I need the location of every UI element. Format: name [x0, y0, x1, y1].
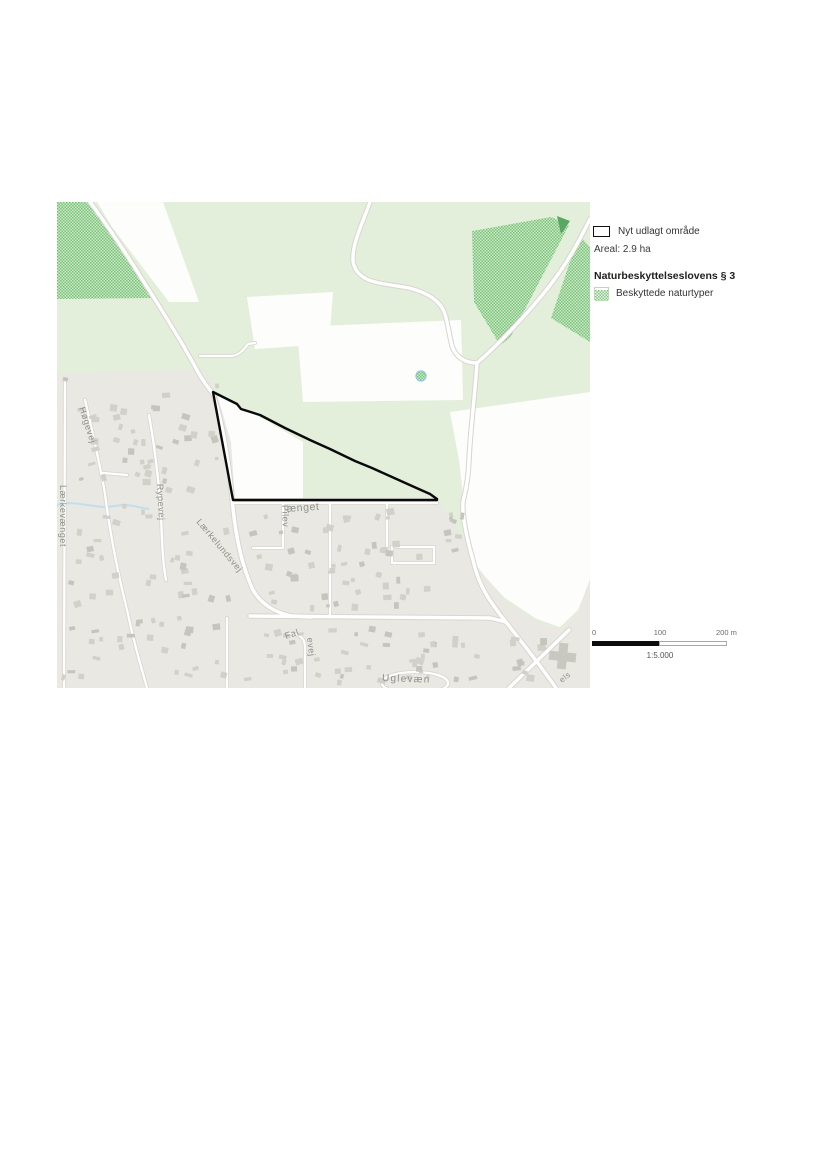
new-area-label: Nyt udlagt område [618, 226, 700, 237]
scale-tick-200: 200 m [716, 628, 737, 637]
area-value: Areal: 2.9 ha [594, 244, 821, 255]
street-label-rypevej: Rypevej [155, 484, 167, 521]
scale-bar-graphic [592, 641, 726, 646]
street-label-pilevaenget-horizontal: ænget [286, 501, 320, 515]
scale-tick-100: 100 [649, 628, 671, 637]
new-area-swatch [593, 226, 610, 237]
scale-bar-white-half [659, 641, 727, 646]
scale-tick-0: 0 [592, 628, 596, 637]
document-page: { "page": { "type": "plan-document-map-f… [0, 0, 827, 1169]
map-legend: Nyt udlagt område Areal: 2.9 ha Naturbes… [593, 226, 821, 300]
scale-bar-black-half [592, 641, 659, 646]
protected-nature-label: Beskyttede naturtyper [616, 288, 713, 299]
protected-nature-swatch [594, 287, 609, 300]
pond [416, 371, 426, 381]
legend-protected-row: Beskyttede naturtyper [594, 287, 821, 300]
scale-ticks: 0 100 200 m [592, 628, 752, 638]
scale-ratio: 1:5.000 [634, 651, 686, 660]
map-figure: Høgevej Rypevej Lærkelundsvej Lærkevænge… [57, 202, 590, 688]
legend-new-area-row: Nyt udlagt område [593, 226, 821, 237]
scale-bar: 0 100 200 m 1:5.000 [592, 628, 752, 660]
map-canvas: Høgevej Rypevej Lærkelundsvej Lærkevænge… [57, 202, 590, 688]
street-label-laerkevaenget: Lærkevænget [58, 485, 68, 547]
legend-section-heading: Naturbeskyttelseslovens § 3 [594, 270, 821, 282]
street-label-uglevaenget: Uglevæn [382, 673, 431, 686]
